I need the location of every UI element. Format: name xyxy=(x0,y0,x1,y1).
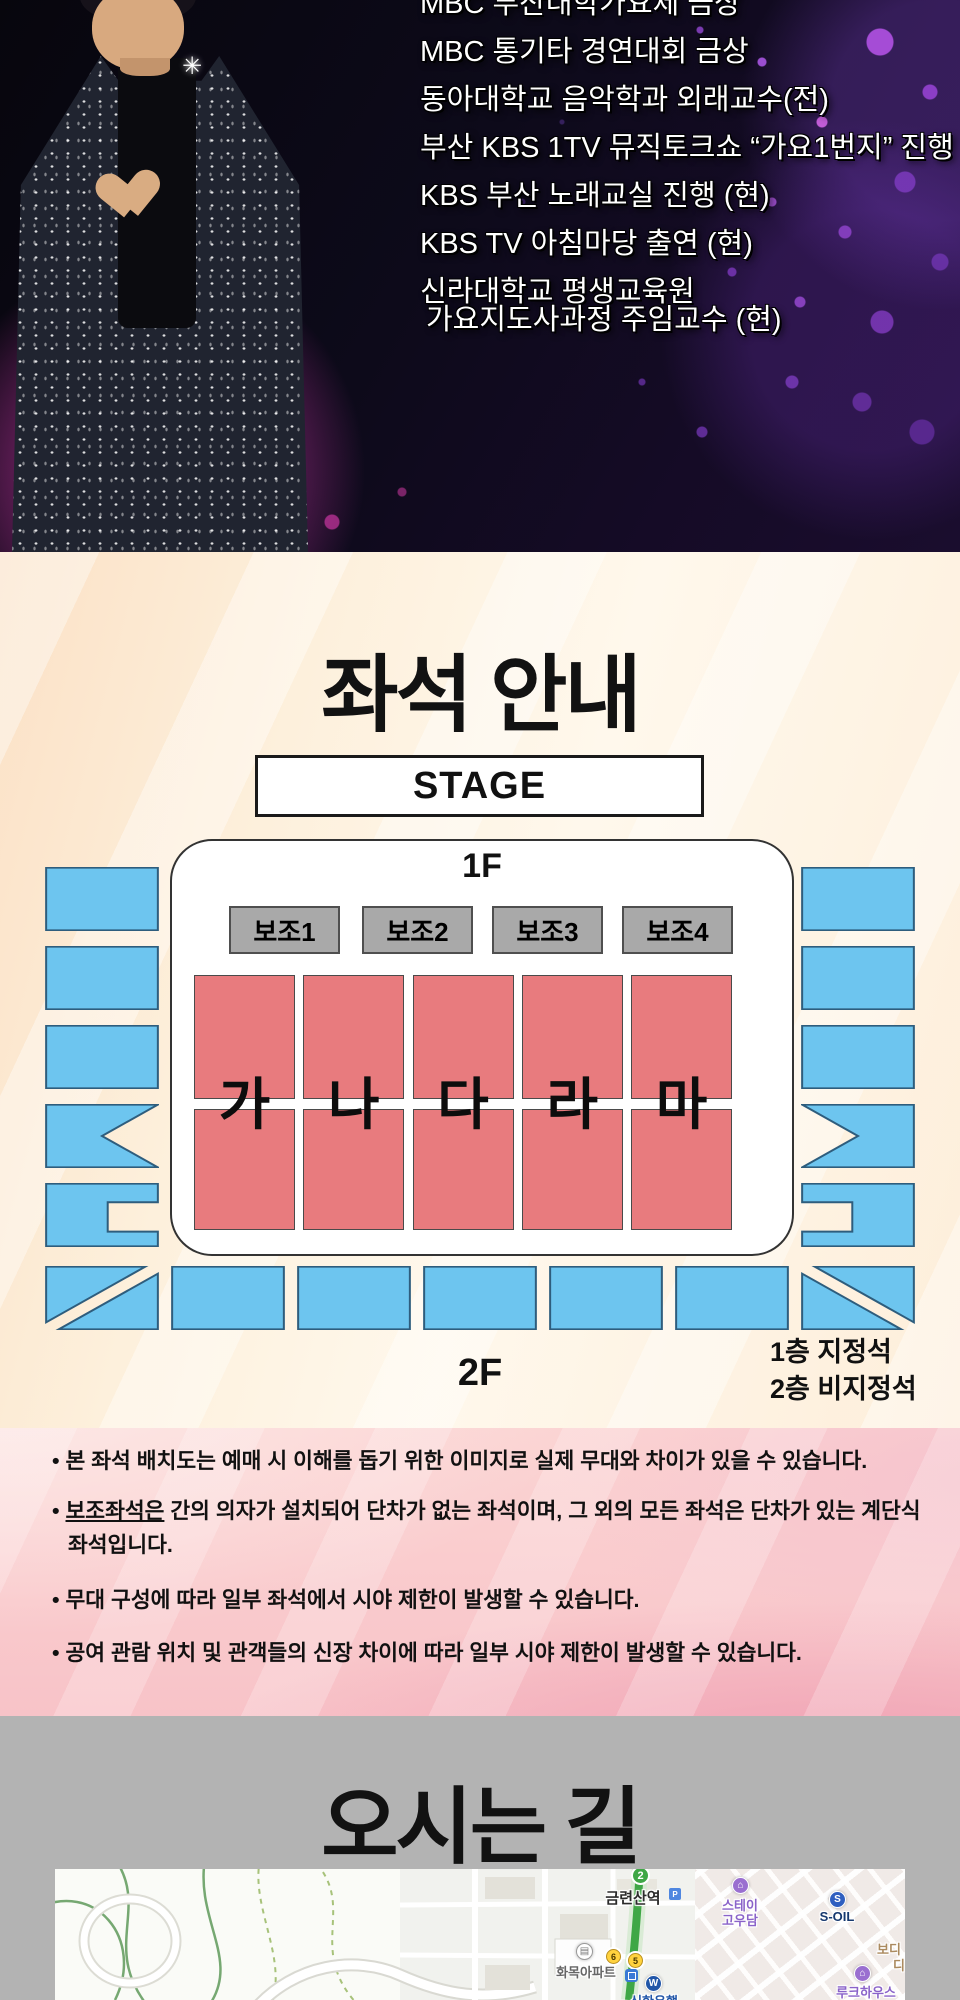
performer-neck xyxy=(120,58,170,76)
seat-block-2f-6 xyxy=(675,1266,789,1330)
credential-line: MBC 통기타 경연대회 금상 xyxy=(420,38,954,67)
section-label: 가 xyxy=(194,1060,295,1141)
section-label: 마 xyxy=(631,1060,732,1141)
seat-block-left-5 xyxy=(45,1183,159,1247)
notice-section: 본 좌석 배치도는 예매 시 이해를 돕기 위한 이미지로 실제 무대와 차이가… xyxy=(0,1428,960,1716)
section-label: 라 xyxy=(522,1060,623,1141)
bank-icon: W xyxy=(645,1975,662,1992)
floor1-label: 1F xyxy=(170,847,794,886)
seat-block-left-2 xyxy=(45,946,159,1010)
aux-seat-4: 보조4 xyxy=(622,906,733,954)
seat-block-right-3 xyxy=(801,1025,915,1089)
aux-seat-3: 보조3 xyxy=(492,906,603,954)
seat-block-right-2 xyxy=(801,946,915,1010)
credentials-list: MBC 부산대학가요제 금상 MBC 통기타 경연대회 금상 동아대학교 음악학… xyxy=(420,0,954,354)
directions-title: 오시는 길 xyxy=(0,1760,960,1881)
stage-box: STAGE xyxy=(255,755,704,817)
aux-seat-2: 보조2 xyxy=(362,906,473,954)
apartment-icon: ▤ xyxy=(576,1943,593,1960)
seat-block-left-4 xyxy=(45,1104,159,1168)
seat-block-2f-3 xyxy=(297,1266,411,1330)
reserved-sections-grid: 가 나 다 라 마 xyxy=(194,975,732,1230)
credential-line: 동아대학교 음악학과 외래교수(전) xyxy=(420,86,954,115)
station-label: 금련산역 xyxy=(583,1887,683,1908)
seating-guide-section: 좌석 안내 STAGE 1F 보조1 보조2 보조3 보조4 가 나 다 라 xyxy=(0,552,960,1428)
section-ra: 라 xyxy=(522,975,623,1230)
parking-icon: P xyxy=(669,1888,681,1900)
credential-line: 부산 KBS 1TV 뮤직토크쇼 “가요1번지” 진행 xyxy=(420,134,954,163)
notice-item: 본 좌석 배치도는 예매 시 이해를 돕기 위한 이미지로 실제 무대와 차이가… xyxy=(52,1444,924,1478)
seat-block-2f-2 xyxy=(171,1266,285,1330)
lodging-label: 루크하우스 xyxy=(821,1982,905,2000)
lodging-icon-stay: ⌂ xyxy=(732,1877,749,1894)
seat-block-left-3 xyxy=(45,1025,159,1089)
credential-line: 가요지도사과정 주임교수 (현) xyxy=(420,306,954,335)
credential-line: KBS TV 아침마당 출연 (현) xyxy=(420,230,954,259)
section-da: 다 xyxy=(413,975,514,1230)
seat-block-2f-5 xyxy=(549,1266,663,1330)
apartment-label: 화목아파트 xyxy=(541,1962,631,1981)
seat-block-right-5 xyxy=(801,1183,915,1247)
lodging-icon-luk: ⌂ xyxy=(854,1965,871,1982)
section-label: 다 xyxy=(413,1060,514,1141)
seat-block-right-1 xyxy=(801,867,915,931)
credential-line: 신라대학교 평생교육원 xyxy=(420,278,954,307)
section-label: 나 xyxy=(303,1060,404,1141)
hero-section: ✳ MBC 부산대학가요제 금상 MBC 통기타 경연대회 금상 동아대학교 음… xyxy=(0,0,960,552)
seat-block-2f-7 xyxy=(801,1266,915,1330)
soil-gas-icon: S xyxy=(829,1891,846,1908)
section-ma: 마 xyxy=(631,975,732,1230)
seat-block-right-4 xyxy=(801,1104,915,1168)
performer-photo: ✳ xyxy=(0,0,330,552)
directions-section: 오시는 길 xyxy=(0,1716,960,2000)
section-ga: 가 xyxy=(194,975,295,1230)
stay-label-line2: 고우담 xyxy=(710,1910,770,1929)
seat-legend: 1층 지정석 2층 비지정석 xyxy=(770,1334,917,1408)
seat-block-2f-4 xyxy=(423,1266,537,1330)
soil-label: S-OIL xyxy=(807,1909,867,1924)
sunburst-brooch-icon: ✳ xyxy=(182,52,202,81)
credential-line: KBS 부산 노래교실 진행 (현) xyxy=(420,182,954,211)
bank-label: 신한은행 xyxy=(618,1991,690,2000)
notice-item: 보조좌석은 간의 의자가 설치되어 단차가 없는 좌석이며, 그 외의 모든 좌… xyxy=(52,1494,924,1562)
map-roads xyxy=(55,1869,905,2000)
seating-guide-title: 좌석 안내 xyxy=(0,628,960,749)
seat-block-left-1 xyxy=(45,867,159,931)
location-map: 2 금련산역 P 6 5 ▤ 화목아파트 W 신한은행 ⌂ 스테이 고우담 S … xyxy=(55,1869,905,2000)
notice-item: 무대 구성에 따라 일부 좌석에서 시야 제한이 발생할 수 있습니다. xyxy=(52,1583,924,1617)
event-detail-page: ✳ MBC 부산대학가요제 금상 MBC 통기타 경연대회 금상 동아대학교 음… xyxy=(0,0,960,2000)
aux-seat-1: 보조1 xyxy=(229,906,340,954)
legend-floor2: 2층 비지정석 xyxy=(770,1371,917,1408)
legend-floor1: 1층 지정석 xyxy=(770,1334,917,1371)
notice-item: 공여 관람 위치 및 관객들의 신장 차이에 따라 일부 시야 제한이 발생할 … xyxy=(52,1636,924,1670)
clipped-label-line2: 디 xyxy=(893,1955,905,1974)
section-na: 나 xyxy=(303,975,404,1230)
seat-block-2f-1 xyxy=(45,1266,159,1330)
credential-line: MBC 부산대학가요제 금상 xyxy=(420,0,954,19)
heart-hands xyxy=(106,169,167,225)
